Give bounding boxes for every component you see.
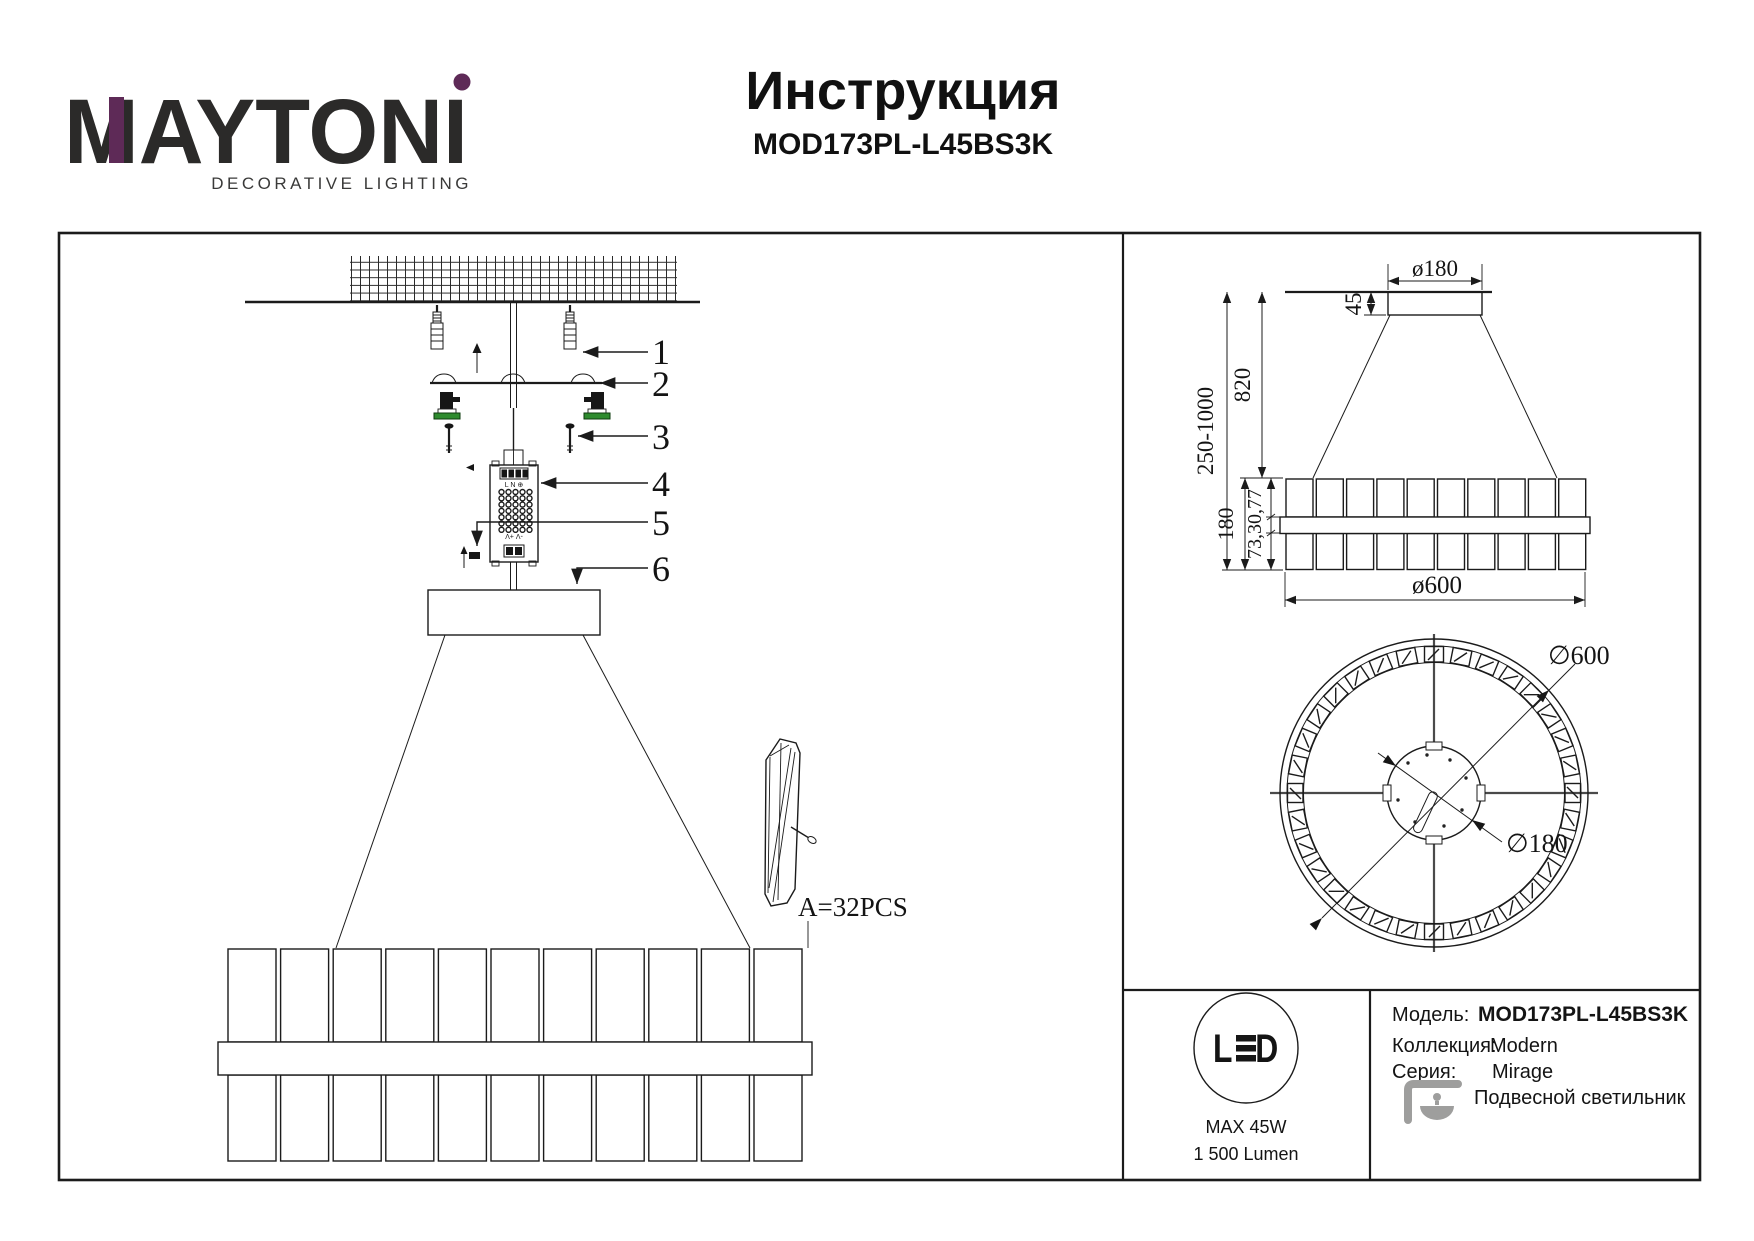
wall-anchor-left xyxy=(431,305,443,349)
canopy xyxy=(428,590,600,635)
screw-left xyxy=(445,423,454,453)
spec-info-cell: Модель: MOD173PL-L45BS3K Коллекция: Mode… xyxy=(1392,1003,1688,1120)
callout-3: 3 xyxy=(652,417,670,457)
insert-direction-arrow-icon xyxy=(473,343,482,373)
cable-gripper-right xyxy=(584,392,610,419)
callout-5: 5 xyxy=(652,503,670,543)
spec-row-label: Модель: xyxy=(1392,1004,1469,1026)
spec-led-cell: LED MAX 45W 1 500 Lumen xyxy=(1193,993,1298,1164)
technical-drawing: L N ⊕ -V +V xyxy=(0,0,1754,1241)
dim-ring-sections: 73,30,77 xyxy=(1244,489,1266,559)
crystal-detail-piece xyxy=(765,739,800,906)
callout-4: 4 xyxy=(652,464,670,504)
dim-suspension-range: 250-1000 xyxy=(1193,387,1218,475)
luminous-flux: 1 500 Lumen xyxy=(1193,1144,1298,1164)
dim-plan-outer-diameter: ∅600 xyxy=(1548,641,1610,670)
detail-count-label: A=32PCS xyxy=(798,892,908,922)
dim-ring-diameter: ø600 xyxy=(1412,572,1462,599)
suspension-cable-right xyxy=(583,635,750,948)
dc-plug xyxy=(461,464,481,568)
spec-row-label: Серия: xyxy=(1392,1061,1456,1083)
spec-row-value: Подвесной светильник xyxy=(1474,1087,1686,1109)
callout-6: 6 xyxy=(652,549,670,589)
spec-row-value: Modern xyxy=(1490,1035,1558,1057)
wall-anchor-right xyxy=(564,305,576,349)
spec-row-label: Коллекция: xyxy=(1392,1035,1497,1057)
dim-plan-canopy-diameter: ∅180 xyxy=(1506,829,1568,858)
suspension-cable-left xyxy=(336,635,445,948)
max-power: MAX 45W xyxy=(1205,1117,1286,1137)
pendant-lamp-icon xyxy=(1408,1084,1458,1120)
spec-row-value: Mirage xyxy=(1492,1061,1553,1083)
ring-band xyxy=(218,1042,812,1075)
screw-right xyxy=(566,423,575,453)
dim-canopy-height: 45 xyxy=(1341,293,1366,316)
dim-canopy-diameter: ø180 xyxy=(1412,256,1458,281)
ceiling-hatch xyxy=(350,256,677,302)
led-driver: L N ⊕ -V +V xyxy=(490,461,538,566)
spec-row-value: MOD173PL-L45BS3K xyxy=(1478,1003,1688,1026)
ring-band-side xyxy=(1280,517,1590,534)
dim-height-to-ring: 820 xyxy=(1230,368,1255,403)
driver-output-label: -V +V xyxy=(505,532,523,539)
top-view-drawing: ∅600 ∅180 xyxy=(1270,634,1610,952)
cable-gripper-left xyxy=(434,392,460,419)
instruction-sheet: MAYTONI DECORATIVE LIGHTING Инструкция M… xyxy=(0,0,1754,1241)
callout-2: 2 xyxy=(652,364,670,404)
driver-mains-label: L N ⊕ xyxy=(505,482,524,489)
assembly-diagram: L N ⊕ -V +V xyxy=(218,256,908,1161)
dim-ring-height: 180 xyxy=(1213,508,1238,541)
canopy-side xyxy=(1388,292,1482,315)
side-view-drawing: ø180 45 250-1000 820 180 73,3 xyxy=(1193,256,1590,607)
